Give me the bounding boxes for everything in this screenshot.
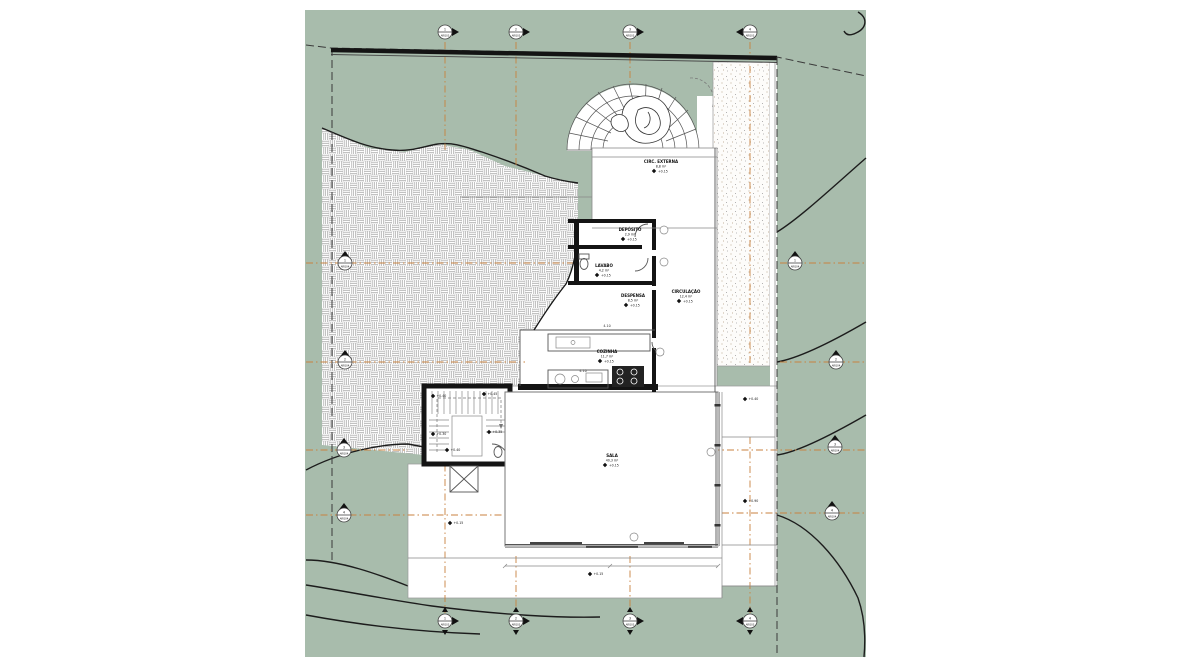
level-marker-icon: +0.15: [588, 572, 603, 576]
svg-text:+0.15: +0.15: [630, 303, 640, 307]
svg-text:4.10: 4.10: [603, 324, 610, 328]
svg-text:ARQ04: ARQ04: [791, 265, 800, 269]
svg-text:DEPÓSITO: DEPÓSITO: [619, 227, 642, 232]
svg-text:+0.40: +0.40: [749, 397, 759, 401]
svg-text:ARQ04: ARQ04: [341, 265, 350, 269]
svg-text:11,7 m²: 11,7 m²: [601, 355, 614, 359]
svg-text:ARQ03: ARQ03: [441, 34, 450, 38]
svg-text:+0.35: +0.35: [493, 430, 503, 434]
svg-text:1: 1: [444, 28, 446, 32]
svg-text:3: 3: [834, 443, 836, 447]
svg-text:2: 2: [835, 358, 837, 362]
svg-text:4: 4: [831, 509, 833, 513]
svg-text:3: 3: [629, 28, 631, 32]
level-marker-icon: +0.30: [431, 432, 446, 436]
svg-text:SALA: SALA: [606, 453, 619, 458]
svg-text:+0.30: +0.30: [437, 432, 447, 436]
svg-text:+0.15: +0.15: [683, 299, 693, 303]
svg-text:12,4 m²: 12,4 m²: [680, 295, 693, 299]
svg-text:40,3 m²: 40,3 m²: [606, 459, 619, 463]
level-marker-icon: +0.45: [482, 392, 497, 396]
svg-text:ARQ04: ARQ04: [340, 452, 349, 456]
svg-text:ARQ04: ARQ04: [340, 517, 349, 521]
svg-text:4: 4: [749, 28, 751, 32]
svg-text:+0.15: +0.15: [658, 169, 668, 173]
svg-text:ARQ04: ARQ04: [828, 515, 837, 519]
planter-below-stair: [450, 466, 478, 492]
svg-text:ARQ03: ARQ03: [512, 623, 521, 627]
svg-text:+0.15: +0.15: [601, 273, 611, 277]
svg-text:ARQ04: ARQ04: [341, 364, 350, 368]
svg-text:COZINHA: COZINHA: [597, 349, 618, 354]
svg-text:+0.45: +0.45: [488, 392, 498, 396]
svg-text:ARQ03: ARQ03: [512, 34, 521, 38]
svg-text:ARQ03: ARQ03: [626, 34, 635, 38]
plan-svg: CIRC. EXTERNA 8,8 m² +0.15 DEPÓSITO 2,9 …: [0, 0, 1184, 666]
level-marker-icon: +0.15: [448, 521, 463, 525]
svg-text:CIRCULAÇÃO: CIRCULAÇÃO: [672, 289, 701, 294]
svg-text:8,5 m²: 8,5 m²: [628, 299, 639, 303]
svg-text:2: 2: [515, 28, 517, 32]
level-marker-icon: +0.35: [487, 430, 502, 434]
svg-text:+0.90: +0.90: [749, 499, 759, 503]
svg-text:ARQ03: ARQ03: [441, 623, 450, 627]
level-marker-icon: +0.40: [445, 448, 460, 452]
svg-text:2: 2: [515, 617, 517, 621]
floor-plan-sheet: CIRC. EXTERNA 8,8 m² +0.15 DEPÓSITO 2,9 …: [0, 0, 1184, 666]
svg-text:2,9 m²: 2,9 m²: [625, 233, 636, 237]
svg-text:+0.15: +0.15: [594, 572, 604, 576]
svg-text:+0.15: +0.15: [627, 237, 637, 241]
svg-text:+0.40: +0.40: [451, 448, 461, 452]
gravel-strip: [713, 62, 770, 366]
svg-text:ARQ04: ARQ04: [831, 449, 840, 453]
svg-text:ARQ04: ARQ04: [832, 364, 841, 368]
svg-text:CIRC. EXTERNA: CIRC. EXTERNA: [644, 159, 679, 164]
level-marker-icon: +0.90: [743, 499, 758, 503]
svg-text:ARQ03: ARQ03: [746, 34, 755, 38]
level-marker-icon: +0.40: [431, 394, 446, 398]
svg-text:+0.15: +0.15: [454, 521, 464, 525]
svg-text:+0.15: +0.15: [604, 359, 614, 363]
svg-text:1: 1: [794, 259, 796, 263]
stove: [612, 366, 644, 387]
svg-text:4: 4: [749, 617, 751, 621]
svg-text:1: 1: [344, 259, 346, 263]
svg-text:ARQ03: ARQ03: [746, 623, 755, 627]
svg-text:2: 2: [344, 358, 346, 362]
svg-text:+0.15: +0.15: [609, 463, 619, 467]
svg-text:8,8 m²: 8,8 m²: [656, 165, 667, 169]
svg-text:4,2 m²: 4,2 m²: [599, 269, 610, 273]
svg-text:4: 4: [343, 511, 345, 515]
svg-text:LAVABO: LAVABO: [595, 263, 613, 268]
svg-text:4.10: 4.10: [579, 369, 586, 373]
svg-text:3: 3: [343, 446, 345, 450]
svg-text:1: 1: [444, 617, 446, 621]
svg-text:3: 3: [629, 617, 631, 621]
svg-text:DESPENSA: DESPENSA: [621, 293, 646, 298]
level-marker-icon: +0.40: [743, 397, 758, 401]
svg-text:+0.40: +0.40: [437, 394, 447, 398]
svg-text:ARQ03: ARQ03: [626, 623, 635, 627]
room-label-sala: SALA 40,3 m² +0.15: [603, 453, 619, 467]
